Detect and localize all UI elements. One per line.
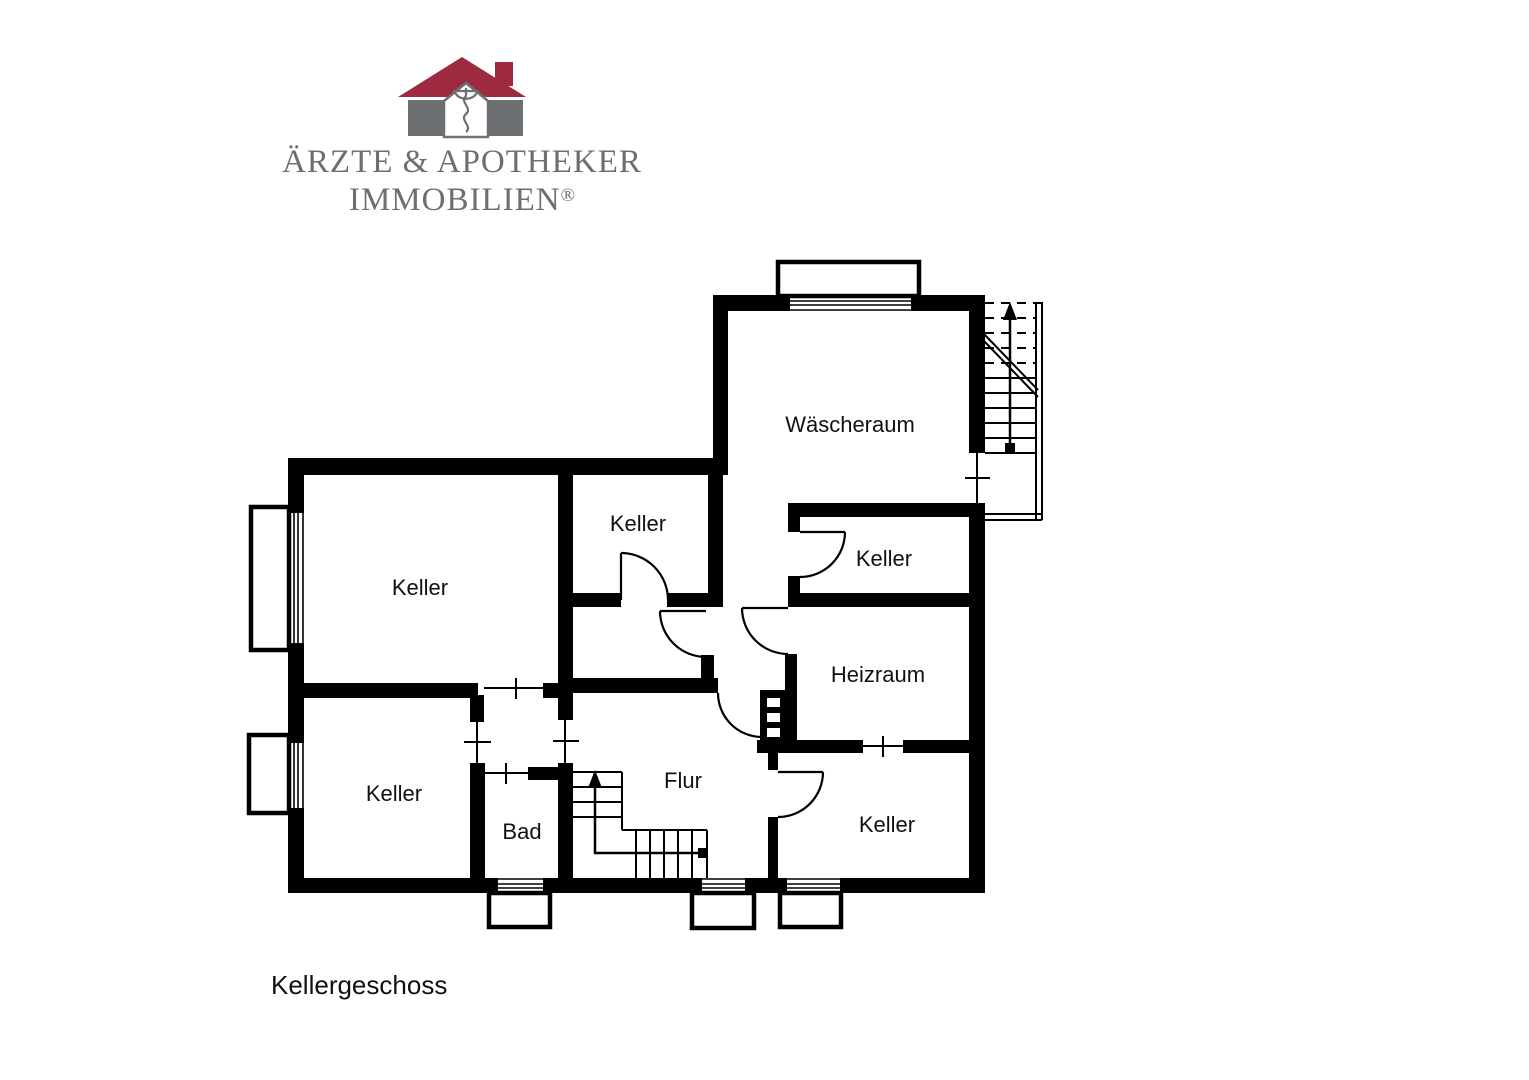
- floor-plan-drawing: Wäscheraum Keller Keller Keller Heizraum…: [0, 0, 1529, 1080]
- window-keller-bottom-right: [787, 879, 840, 892]
- room-label-keller-bottom-right: Keller: [859, 812, 915, 837]
- room-label-keller-top: Keller: [610, 511, 666, 536]
- doors: [621, 532, 845, 817]
- door-keller-right: [800, 532, 845, 577]
- door-keller-bottom-right: [778, 772, 823, 817]
- light-well-bottom-keller: [780, 893, 841, 927]
- door-flur: [718, 693, 762, 737]
- floor-plan-page: ÄRZTE & APOTHEKER IMMOBILIEN®: [0, 0, 1529, 1080]
- exterior-staircase: [983, 302, 1042, 520]
- light-well-bottom-flur: [692, 893, 754, 928]
- wall-openings: [464, 453, 990, 784]
- room-label-keller-large: Keller: [392, 575, 448, 600]
- light-well-left-lower: [249, 735, 289, 813]
- room-label-wascheraum: Wäscheraum: [785, 412, 915, 437]
- chimney-block: [760, 690, 786, 742]
- window-bad-bottom: [498, 879, 543, 892]
- door-heizraum: [742, 608, 788, 654]
- room-label-keller-bottom-left: Keller: [366, 781, 422, 806]
- door-hall-upper: [660, 611, 706, 657]
- room-label-keller-right: Keller: [856, 546, 912, 571]
- light-well-left-upper: [251, 507, 289, 650]
- window-flur-bottom: [702, 879, 745, 892]
- light-well-bottom-bad: [489, 893, 550, 927]
- room-labels: Wäscheraum Keller Keller Keller Heizraum…: [366, 412, 925, 844]
- room-label-bad: Bad: [502, 819, 541, 844]
- floor-title: Kellergeschoss: [271, 970, 447, 1001]
- light-well-top: [778, 262, 919, 296]
- room-label-heizraum: Heizraum: [831, 662, 925, 687]
- door-keller-top: [621, 553, 668, 600]
- room-label-flur: Flur: [664, 768, 702, 793]
